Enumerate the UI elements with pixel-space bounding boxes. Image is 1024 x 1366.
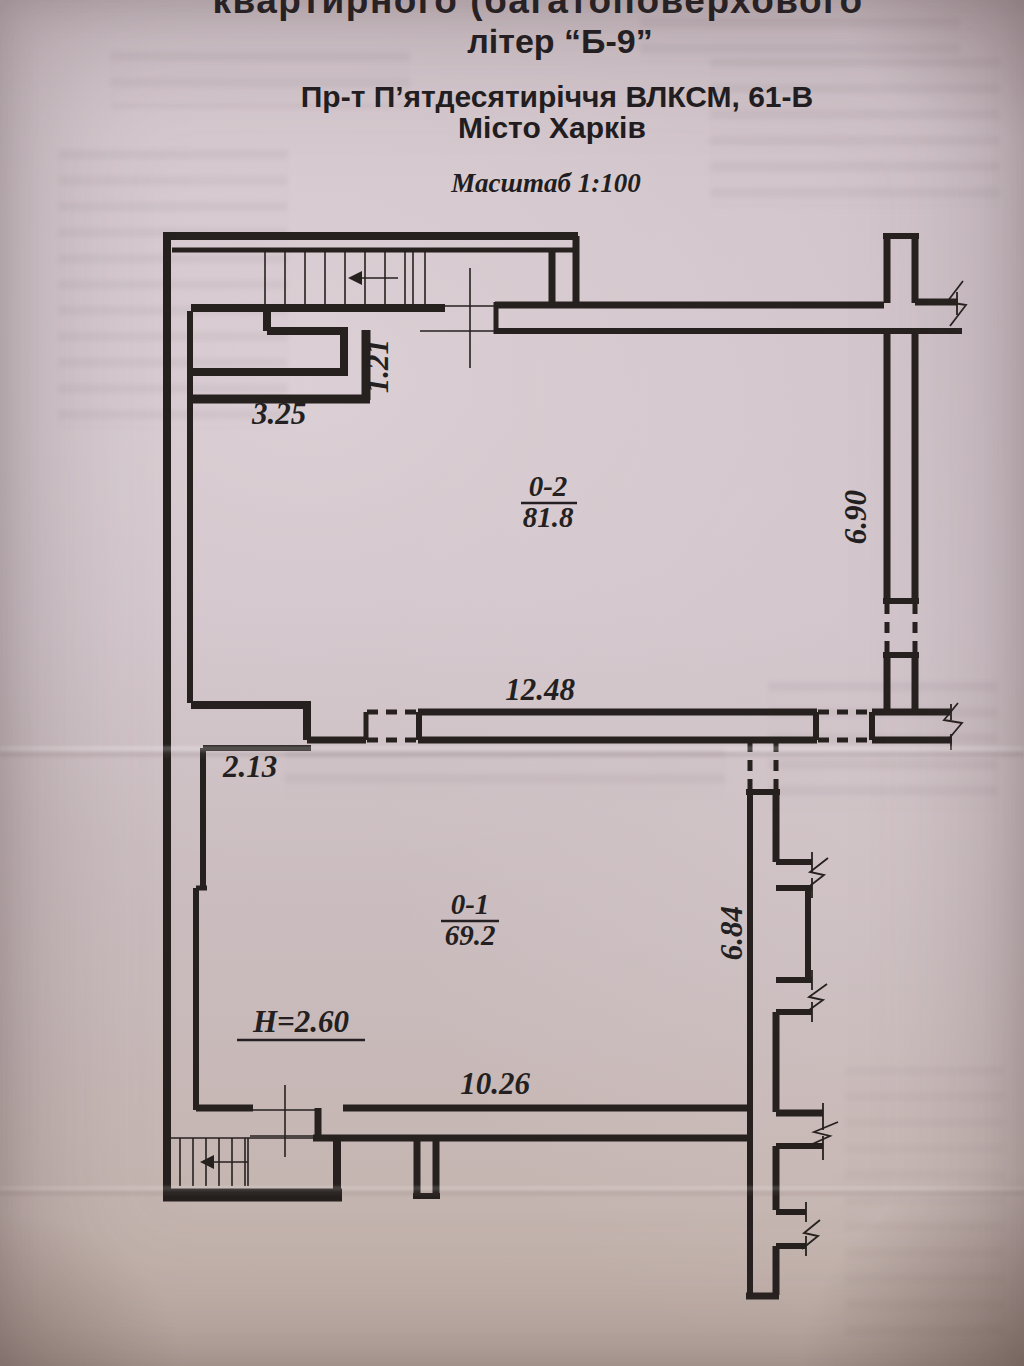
dim-3-25: 3.25: [251, 396, 306, 431]
stairs-and-windows: [167, 250, 522, 1186]
room-0-2-area: 81.8: [523, 501, 574, 533]
dim-6-84: 6.84: [714, 906, 749, 960]
walls-dashed-openings: [367, 603, 915, 790]
room-0-1-area: 69.2: [445, 919, 496, 951]
dim-6-90: 6.90: [838, 490, 873, 544]
label-underlines: [237, 503, 577, 1040]
room-0-1-id: 0-1: [451, 888, 490, 920]
dim-12-48: 12.48: [505, 672, 575, 707]
dim-1-21: 1.21: [360, 339, 395, 393]
scanned-page: квартирного (багатоповерхового літер “Б-…: [0, 0, 1024, 1366]
room-0-2-id: 0-2: [529, 470, 568, 502]
dim-2-13: 2.13: [222, 749, 277, 784]
dim-10-26: 10.26: [460, 1066, 530, 1101]
dim-height-note: H=2.60: [252, 1004, 349, 1039]
floor-plan-drawing: 0-2 81.8 0-1 69.2 3.25 1.21 12.48 2.13 6…: [0, 0, 1024, 1366]
